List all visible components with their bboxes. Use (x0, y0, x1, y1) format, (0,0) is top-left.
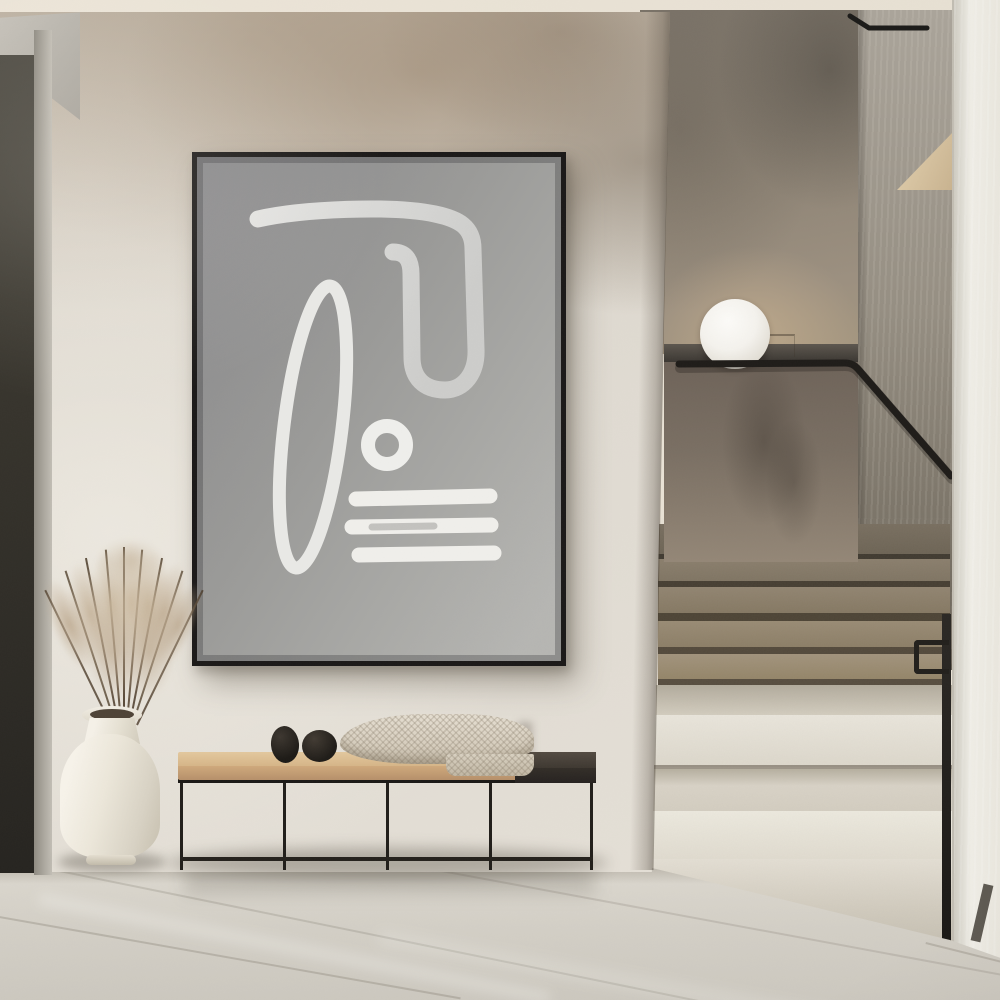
step-upper-3 (658, 587, 950, 613)
bench-bottom-rail (180, 857, 593, 861)
blanket-drape (446, 754, 534, 776)
step-nose (658, 613, 950, 621)
plant-plume (98, 539, 162, 581)
step-lower-riser-2 (650, 769, 952, 811)
upper-handrail-icon (843, 10, 935, 36)
step-lower-tread-1 (654, 715, 952, 767)
step-upper-4 (658, 621, 950, 647)
step-lower-riser-1 (656, 685, 952, 715)
vase-body (60, 734, 160, 858)
handrail-icon (655, 350, 965, 490)
floor-sheen (38, 894, 550, 1000)
art-shape-bar-smudge (372, 526, 434, 527)
handrail-return (914, 640, 949, 674)
artwork-frame (192, 152, 566, 666)
right-wall-column (952, 0, 1000, 1000)
floor-sheen (378, 932, 932, 1000)
art-shape-bar (356, 496, 490, 499)
vase-foot (86, 855, 136, 865)
art-shape-bar (359, 553, 494, 555)
step-lower-tread-2 (648, 811, 952, 859)
step-upper-2 (658, 559, 950, 581)
step-nose (658, 647, 950, 654)
left-door-jamb (34, 30, 52, 875)
vase (60, 704, 160, 866)
decor-stone-right (302, 730, 337, 762)
left-dark-panel (0, 55, 34, 873)
artwork-canvas (197, 157, 561, 661)
floor-grout-line (0, 914, 461, 999)
step-upper-5 (658, 654, 950, 679)
bench (178, 750, 596, 872)
hallway-photo (0, 0, 1000, 1000)
